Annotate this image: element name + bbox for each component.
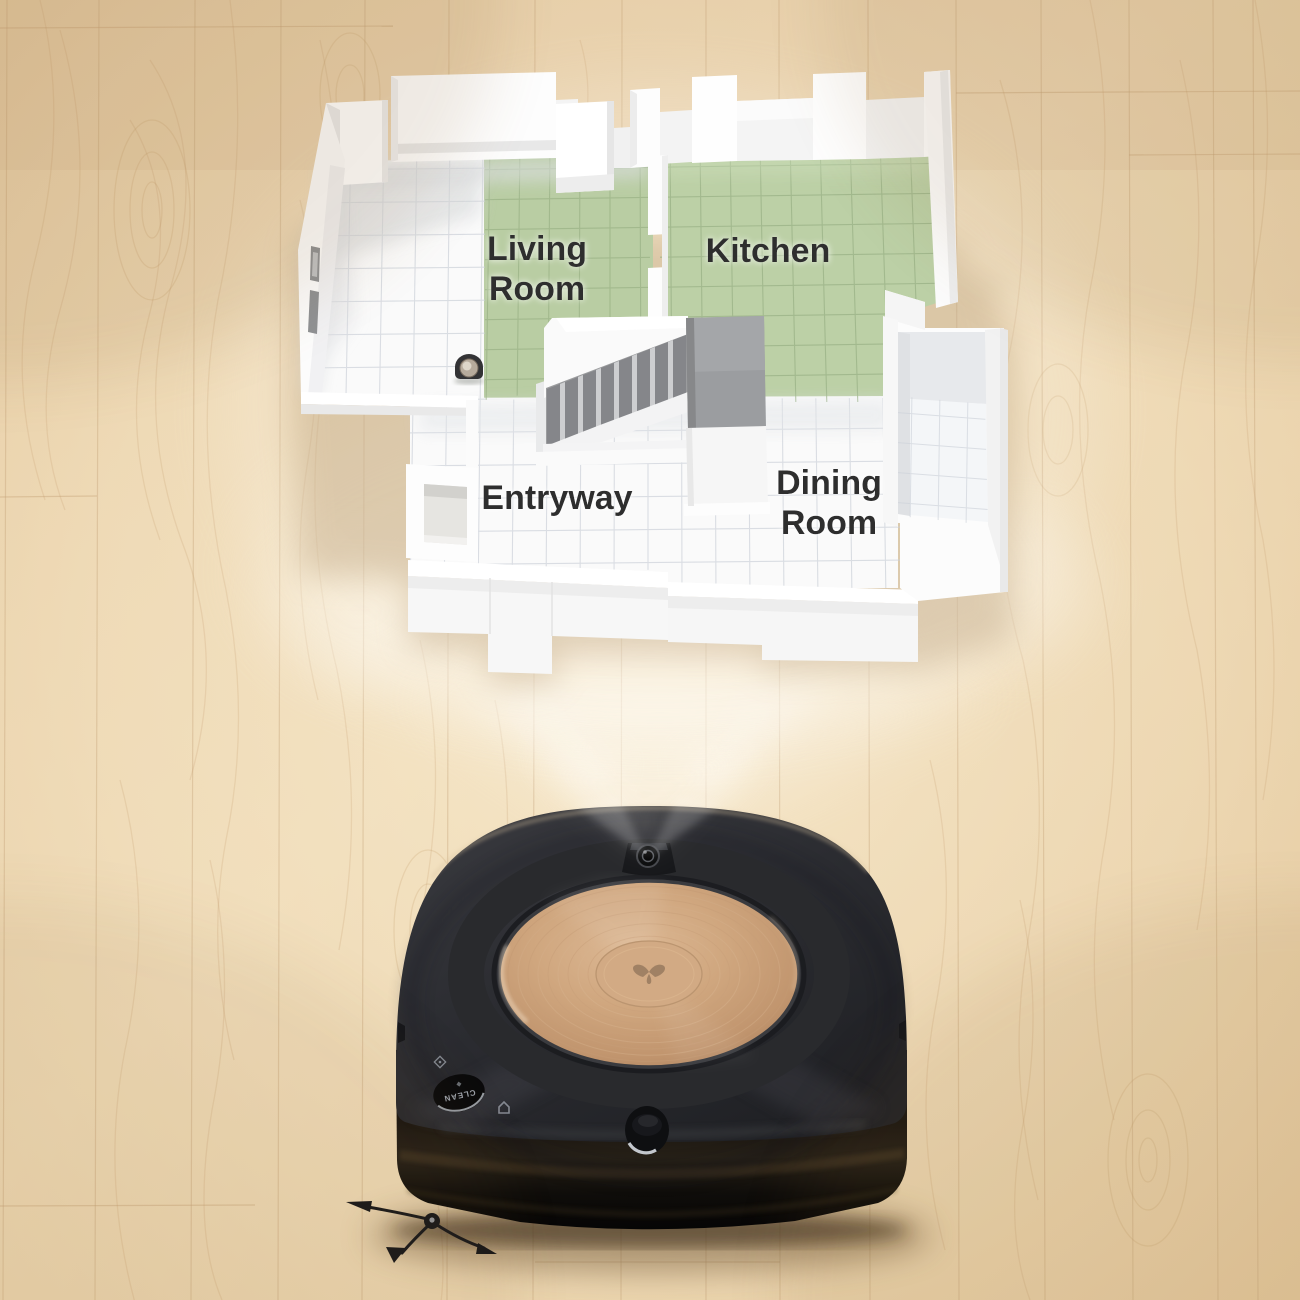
svg-text:Entryway: Entryway — [481, 479, 632, 517]
svg-text:Room: Room — [781, 504, 877, 542]
svg-text:Room: Room — [489, 270, 585, 308]
svg-text:Living: Living — [487, 230, 587, 268]
svg-text:Dining: Dining — [776, 464, 882, 502]
svg-text:Kitchen: Kitchen — [706, 232, 831, 270]
